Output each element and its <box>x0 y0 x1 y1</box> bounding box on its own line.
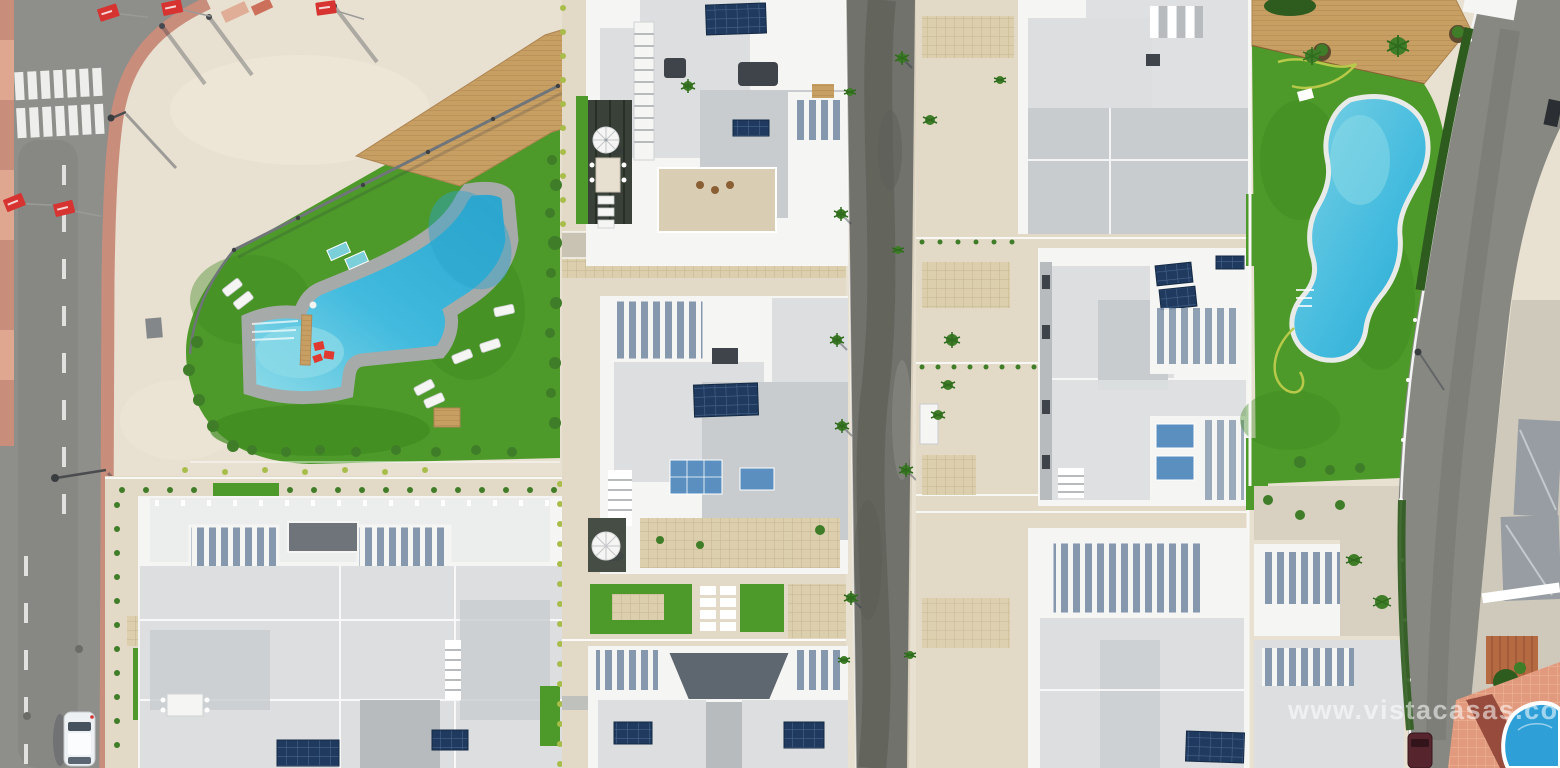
side-garden-a <box>576 96 632 228</box>
roof-box <box>738 62 778 86</box>
solar-array <box>693 383 758 417</box>
aerial-scene: www.vistacasas.com <box>0 0 1560 768</box>
solar-array <box>277 740 339 766</box>
roof-pergola <box>1052 542 1204 614</box>
solar-array <box>1185 731 1244 763</box>
side-garden-b <box>588 518 626 572</box>
glass-panel <box>1156 424 1194 448</box>
loungers <box>598 196 614 228</box>
roof-terrace <box>658 168 776 232</box>
roof-pergola <box>612 300 704 360</box>
patio <box>640 518 840 568</box>
villa-b <box>600 296 848 574</box>
roof-hatch <box>1146 54 1160 66</box>
roof-box <box>664 58 686 78</box>
solar-array <box>705 3 766 35</box>
manhole <box>23 712 31 720</box>
stairs <box>608 470 632 526</box>
aerial-photo: www.vistacasas.com <box>0 0 1560 768</box>
pergola-shadow <box>1152 308 1240 364</box>
villa-right-bottom <box>1028 528 1248 768</box>
villa-southeast <box>1254 540 1404 768</box>
solar-array <box>733 120 769 136</box>
dining-table <box>596 158 620 192</box>
roof-pergola <box>792 650 844 690</box>
villa-c <box>562 646 848 768</box>
tilted-solar <box>1155 262 1193 286</box>
pool-boardwalk <box>300 315 312 365</box>
street-sign <box>145 317 163 338</box>
tilted-solar <box>1159 286 1197 310</box>
villa-right-top <box>1018 0 1248 234</box>
solar-array <box>784 722 824 748</box>
entry-canopy <box>668 652 790 700</box>
driveway <box>360 700 440 768</box>
gravel-terrace <box>1254 486 1404 540</box>
villa-column-center <box>560 0 848 768</box>
stairs <box>1058 468 1084 498</box>
solar-array <box>614 722 652 744</box>
roof-pergola <box>1260 552 1344 604</box>
villa-column-right <box>916 0 1268 768</box>
roof-table-set <box>161 694 210 716</box>
solar-array <box>432 730 468 750</box>
manhole <box>75 645 83 653</box>
balcony-ladder <box>634 22 654 160</box>
pallet-table <box>434 408 460 427</box>
photo-watermark: www.vistacasas.com <box>1287 695 1560 725</box>
stairs <box>445 640 461 700</box>
planter-bench <box>920 404 938 444</box>
parked-maroon-car <box>1408 733 1432 768</box>
roof-pergola <box>596 650 658 690</box>
roof-pergola <box>795 100 843 140</box>
solar-array <box>1216 256 1244 269</box>
parked-white-car <box>53 712 95 766</box>
villa-row-left <box>105 476 563 768</box>
glass-panel <box>1156 456 1194 480</box>
villa-right-middle <box>1038 248 1248 506</box>
stairwell-glass <box>288 522 358 552</box>
roof-pergola <box>1262 648 1354 686</box>
